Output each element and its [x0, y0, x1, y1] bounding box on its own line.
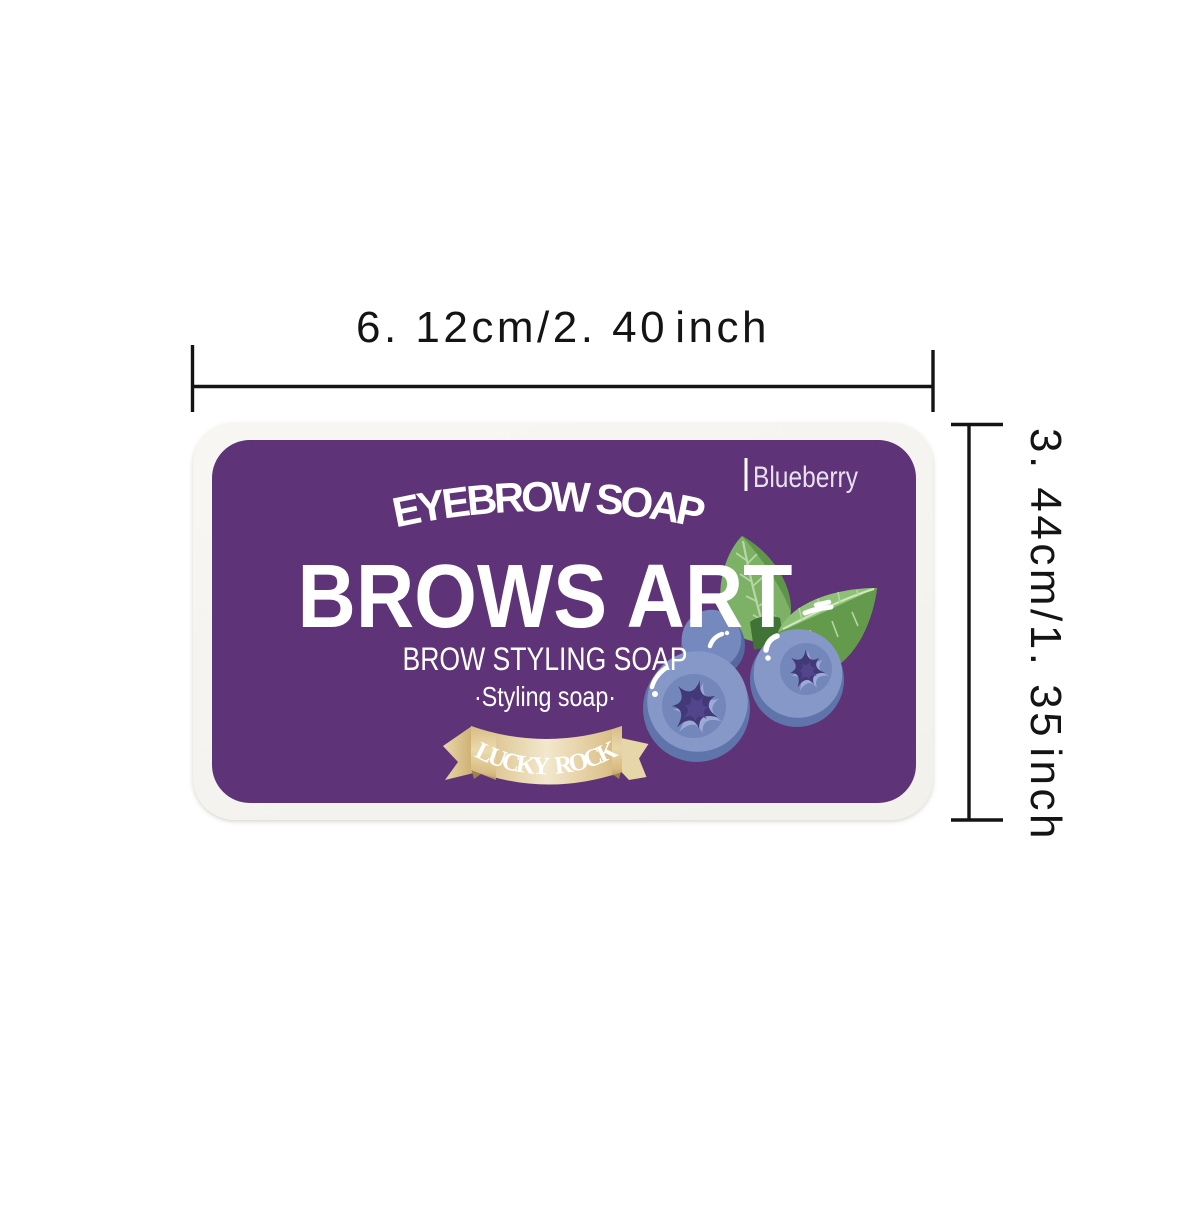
svg-text:Blueberry: Blueberry — [753, 461, 858, 494]
svg-text:BROWS ART: BROWS ART — [298, 547, 793, 647]
svg-text:6. 12cm/2. 40 inch: 6. 12cm/2. 40 inch — [356, 303, 770, 352]
svg-text:3. 44cm/1. 35 inch: 3. 44cm/1. 35 inch — [1021, 428, 1070, 842]
svg-text:BROW STYLING SOAP: BROW STYLING SOAP — [403, 641, 688, 677]
svg-text:·Styling soap·: ·Styling soap· — [474, 681, 616, 712]
